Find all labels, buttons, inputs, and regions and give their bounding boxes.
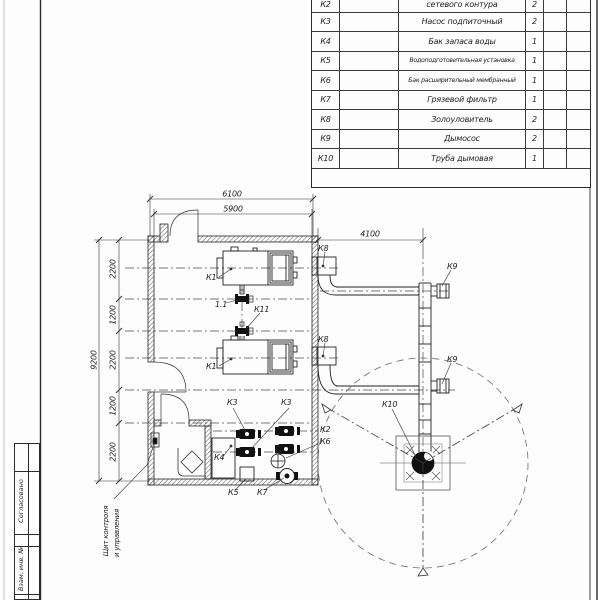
spec-designation — [340, 0, 399, 12]
label-chimney-k10: К10 — [382, 400, 397, 409]
callout-control-panel-line2: и управления — [113, 509, 121, 557]
spec-note — [567, 32, 590, 51]
spec-designation — [340, 13, 399, 32]
dim-4100: 4100 — [360, 230, 380, 239]
valve-1-1 — [235, 290, 253, 304]
spec-pos: К2 — [312, 0, 340, 12]
spec-qty: 2 — [526, 130, 544, 149]
spec-name: Грязевой фильтр — [399, 91, 526, 110]
spec-name: Насос подпиточный — [399, 13, 526, 32]
table-row: К3Насос подпиточный2 — [312, 13, 590, 33]
label-k8-upper: К8 — [318, 244, 328, 253]
boiler-k1-lower — [217, 336, 297, 374]
dim-chain-4: 1200 — [109, 396, 118, 416]
dim-chain-5: 2200 — [109, 442, 118, 462]
spec-qty: 1 — [526, 52, 544, 71]
ash-collector-k8-upper — [312, 257, 419, 295]
spec-mass — [544, 52, 567, 71]
spec-pos: К10 — [312, 149, 340, 168]
ash-collector-k8-lower — [312, 347, 419, 394]
strip-divider — [28, 444, 29, 599]
spec-note — [567, 0, 590, 12]
spec-name: сетевого контура — [399, 0, 526, 12]
spec-name: Бак расширительный мембранный — [399, 71, 526, 90]
pump-k2-lower — [275, 444, 300, 454]
label-k8-lower: К8 — [318, 335, 328, 344]
spec-designation — [340, 149, 399, 168]
strip-label-inv: Взам. инв. № — [17, 547, 25, 591]
leader-lines — [114, 252, 451, 499]
spec-note — [567, 52, 590, 71]
spec-table-rows: К2сетевого контура2К3Насос подпиточный2К… — [312, 0, 590, 169]
spec-note — [567, 130, 590, 149]
spec-designation — [340, 32, 399, 51]
drawing-sheet: К2сетевого контура2К3Насос подпиточный2К… — [0, 0, 600, 600]
pump-k3-upper — [236, 429, 261, 439]
spec-pos: К8 — [312, 110, 340, 129]
spec-designation — [340, 52, 399, 71]
spec-qty: 2 — [526, 110, 544, 129]
label-pump-k3-upper: К3 — [227, 398, 237, 407]
spec-pos: К9 — [312, 130, 340, 149]
spec-mass — [544, 32, 567, 51]
spec-qty: 1 — [526, 91, 544, 110]
flue-duct — [419, 283, 431, 452]
spec-note — [567, 71, 590, 90]
spec-pos: К4 — [312, 32, 340, 51]
spec-name: Золоуловитель — [399, 110, 526, 129]
spec-pos: К5 — [312, 52, 340, 71]
dim-6100: 6100 — [222, 190, 242, 199]
spec-mass — [544, 149, 567, 168]
label-valve-1-1: 1.1 — [215, 300, 227, 309]
floor-drain — [178, 448, 206, 476]
smoke-exhauster-k9-upper — [431, 284, 449, 298]
table-row: К7Грязевой фильтр1 — [312, 91, 590, 111]
pump-k3-lower — [236, 447, 261, 457]
spec-note — [567, 149, 590, 168]
table-row: К6Бак расширительный мембранный1 — [312, 71, 590, 91]
spec-name: Бак запаса воды — [399, 32, 526, 51]
spec-qty: 2 — [526, 13, 544, 32]
label-boiler-k1-lower: К1 — [206, 362, 216, 371]
spec-qty: 1 — [526, 71, 544, 90]
label-k7: К7 — [257, 488, 267, 497]
dim-chain-2: 1200 — [109, 305, 118, 325]
dim-5900: 5900 — [223, 205, 243, 214]
spec-pos: К7 — [312, 91, 340, 110]
dim-chain-3: 2200 — [109, 350, 118, 370]
dim-9200: 9200 — [90, 350, 99, 370]
spec-qty: 1 — [526, 32, 544, 51]
table-row: К4Бак запаса воды1 — [312, 32, 590, 52]
label-tank-k4: К4 — [214, 453, 224, 462]
label-k9-lower: К9 — [447, 355, 457, 364]
table-row: К2сетевого контура2 — [312, 0, 590, 13]
spec-mass — [544, 0, 567, 12]
spec-designation — [340, 91, 399, 110]
spec-designation — [340, 130, 399, 149]
spec-pos: К6 — [312, 71, 340, 90]
label-boiler-k1-upper: К1 — [206, 273, 216, 282]
spec-name: Дымосос — [399, 130, 526, 149]
label-pump-k2: К2 — [320, 425, 330, 434]
pump-k2-upper — [275, 426, 300, 436]
table-row: К8Золоуловитель2 — [312, 110, 590, 130]
spec-name: Водоподготовительная установка — [399, 52, 526, 71]
spec-name: Труба дымовая — [399, 149, 526, 168]
spec-qty: 1 — [526, 149, 544, 168]
label-pump-k3-lower: К3 — [281, 398, 291, 407]
label-k9-upper: К9 — [447, 262, 457, 271]
spec-qty: 2 — [526, 0, 544, 12]
dim-chain-1: 2200 — [109, 259, 118, 279]
label-valve-k11: К11 — [254, 305, 269, 314]
table-row: К9Дымосос2 — [312, 130, 590, 150]
spec-pos: К3 — [312, 13, 340, 32]
spec-designation — [340, 110, 399, 129]
spec-mass — [544, 71, 567, 90]
spec-mass — [544, 13, 567, 32]
spec-mass — [544, 110, 567, 129]
smoke-exhauster-k9-lower — [431, 379, 449, 393]
table-row: К10Труба дымовая1 — [312, 149, 590, 169]
table-row: К5Водоподготовительная установка1 — [312, 52, 590, 72]
spec-note — [567, 91, 590, 110]
label-tank-k6: К6 — [320, 437, 330, 446]
spec-designation — [340, 71, 399, 90]
spec-mass — [544, 130, 567, 149]
strip-label-agreed: Согласовано — [17, 479, 25, 523]
spec-note — [567, 110, 590, 129]
specification-table: К2сетевого контура2К3Насос подпиточный2К… — [311, 0, 591, 188]
label-k5: К5 — [228, 488, 238, 497]
callout-control-panel-line1: Щит контроля — [102, 506, 110, 557]
spec-mass — [544, 91, 567, 110]
spec-note — [567, 13, 590, 32]
